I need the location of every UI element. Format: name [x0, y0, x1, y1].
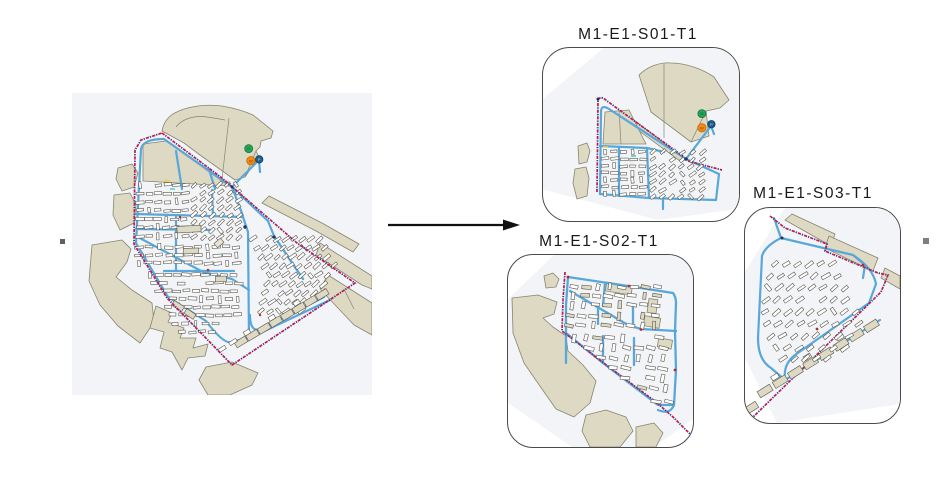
svg-text:W: W	[700, 125, 704, 130]
svg-text:G: G	[247, 146, 250, 151]
svg-text:P: P	[710, 122, 713, 127]
svg-text:W: W	[249, 158, 253, 163]
svg-text:G: G	[700, 111, 703, 116]
svg-text:P: P	[258, 157, 261, 162]
